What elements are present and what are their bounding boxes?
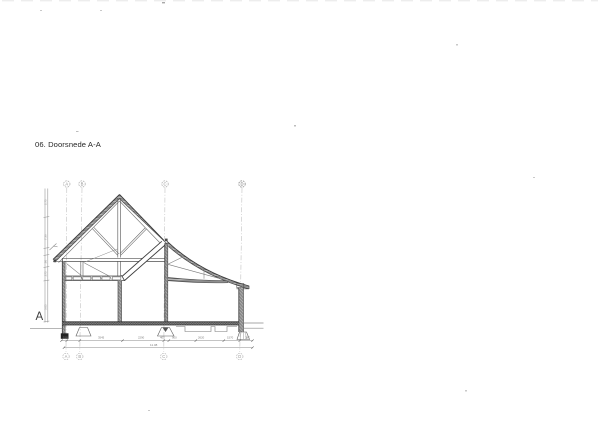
svg-text:06. Doorsnede A-A: 06. Doorsnede A-A: [35, 140, 102, 149]
svg-text:A: A: [65, 182, 68, 187]
svg-text:518: 518: [63, 336, 68, 340]
svg-text:C: C: [163, 182, 166, 187]
svg-text:900: 900: [172, 336, 177, 340]
svg-text:D: D: [240, 182, 243, 187]
svg-text:C: C: [162, 354, 165, 359]
svg-text:B: B: [78, 354, 81, 359]
svg-text:.375: .375: [44, 271, 48, 277]
svg-text:400: 400: [160, 336, 165, 340]
svg-text:287: 287: [245, 336, 250, 340]
svg-text:2620: 2620: [198, 336, 205, 340]
svg-text:2.75: 2.75: [44, 199, 48, 205]
svg-text:3545: 3545: [98, 336, 105, 340]
svg-text:2290: 2290: [138, 336, 145, 340]
svg-text:1570: 1570: [227, 336, 234, 340]
svg-text:.90: .90: [44, 260, 48, 264]
svg-text:B: B: [81, 182, 84, 187]
svg-text:A: A: [65, 354, 68, 359]
svg-text:A: A: [36, 311, 44, 323]
svg-text:7.36: 7.36: [44, 234, 48, 240]
svg-text:3.05: 3.05: [44, 304, 48, 310]
svg-text:D: D: [238, 354, 241, 359]
svg-text:11.08: 11.08: [150, 343, 158, 347]
